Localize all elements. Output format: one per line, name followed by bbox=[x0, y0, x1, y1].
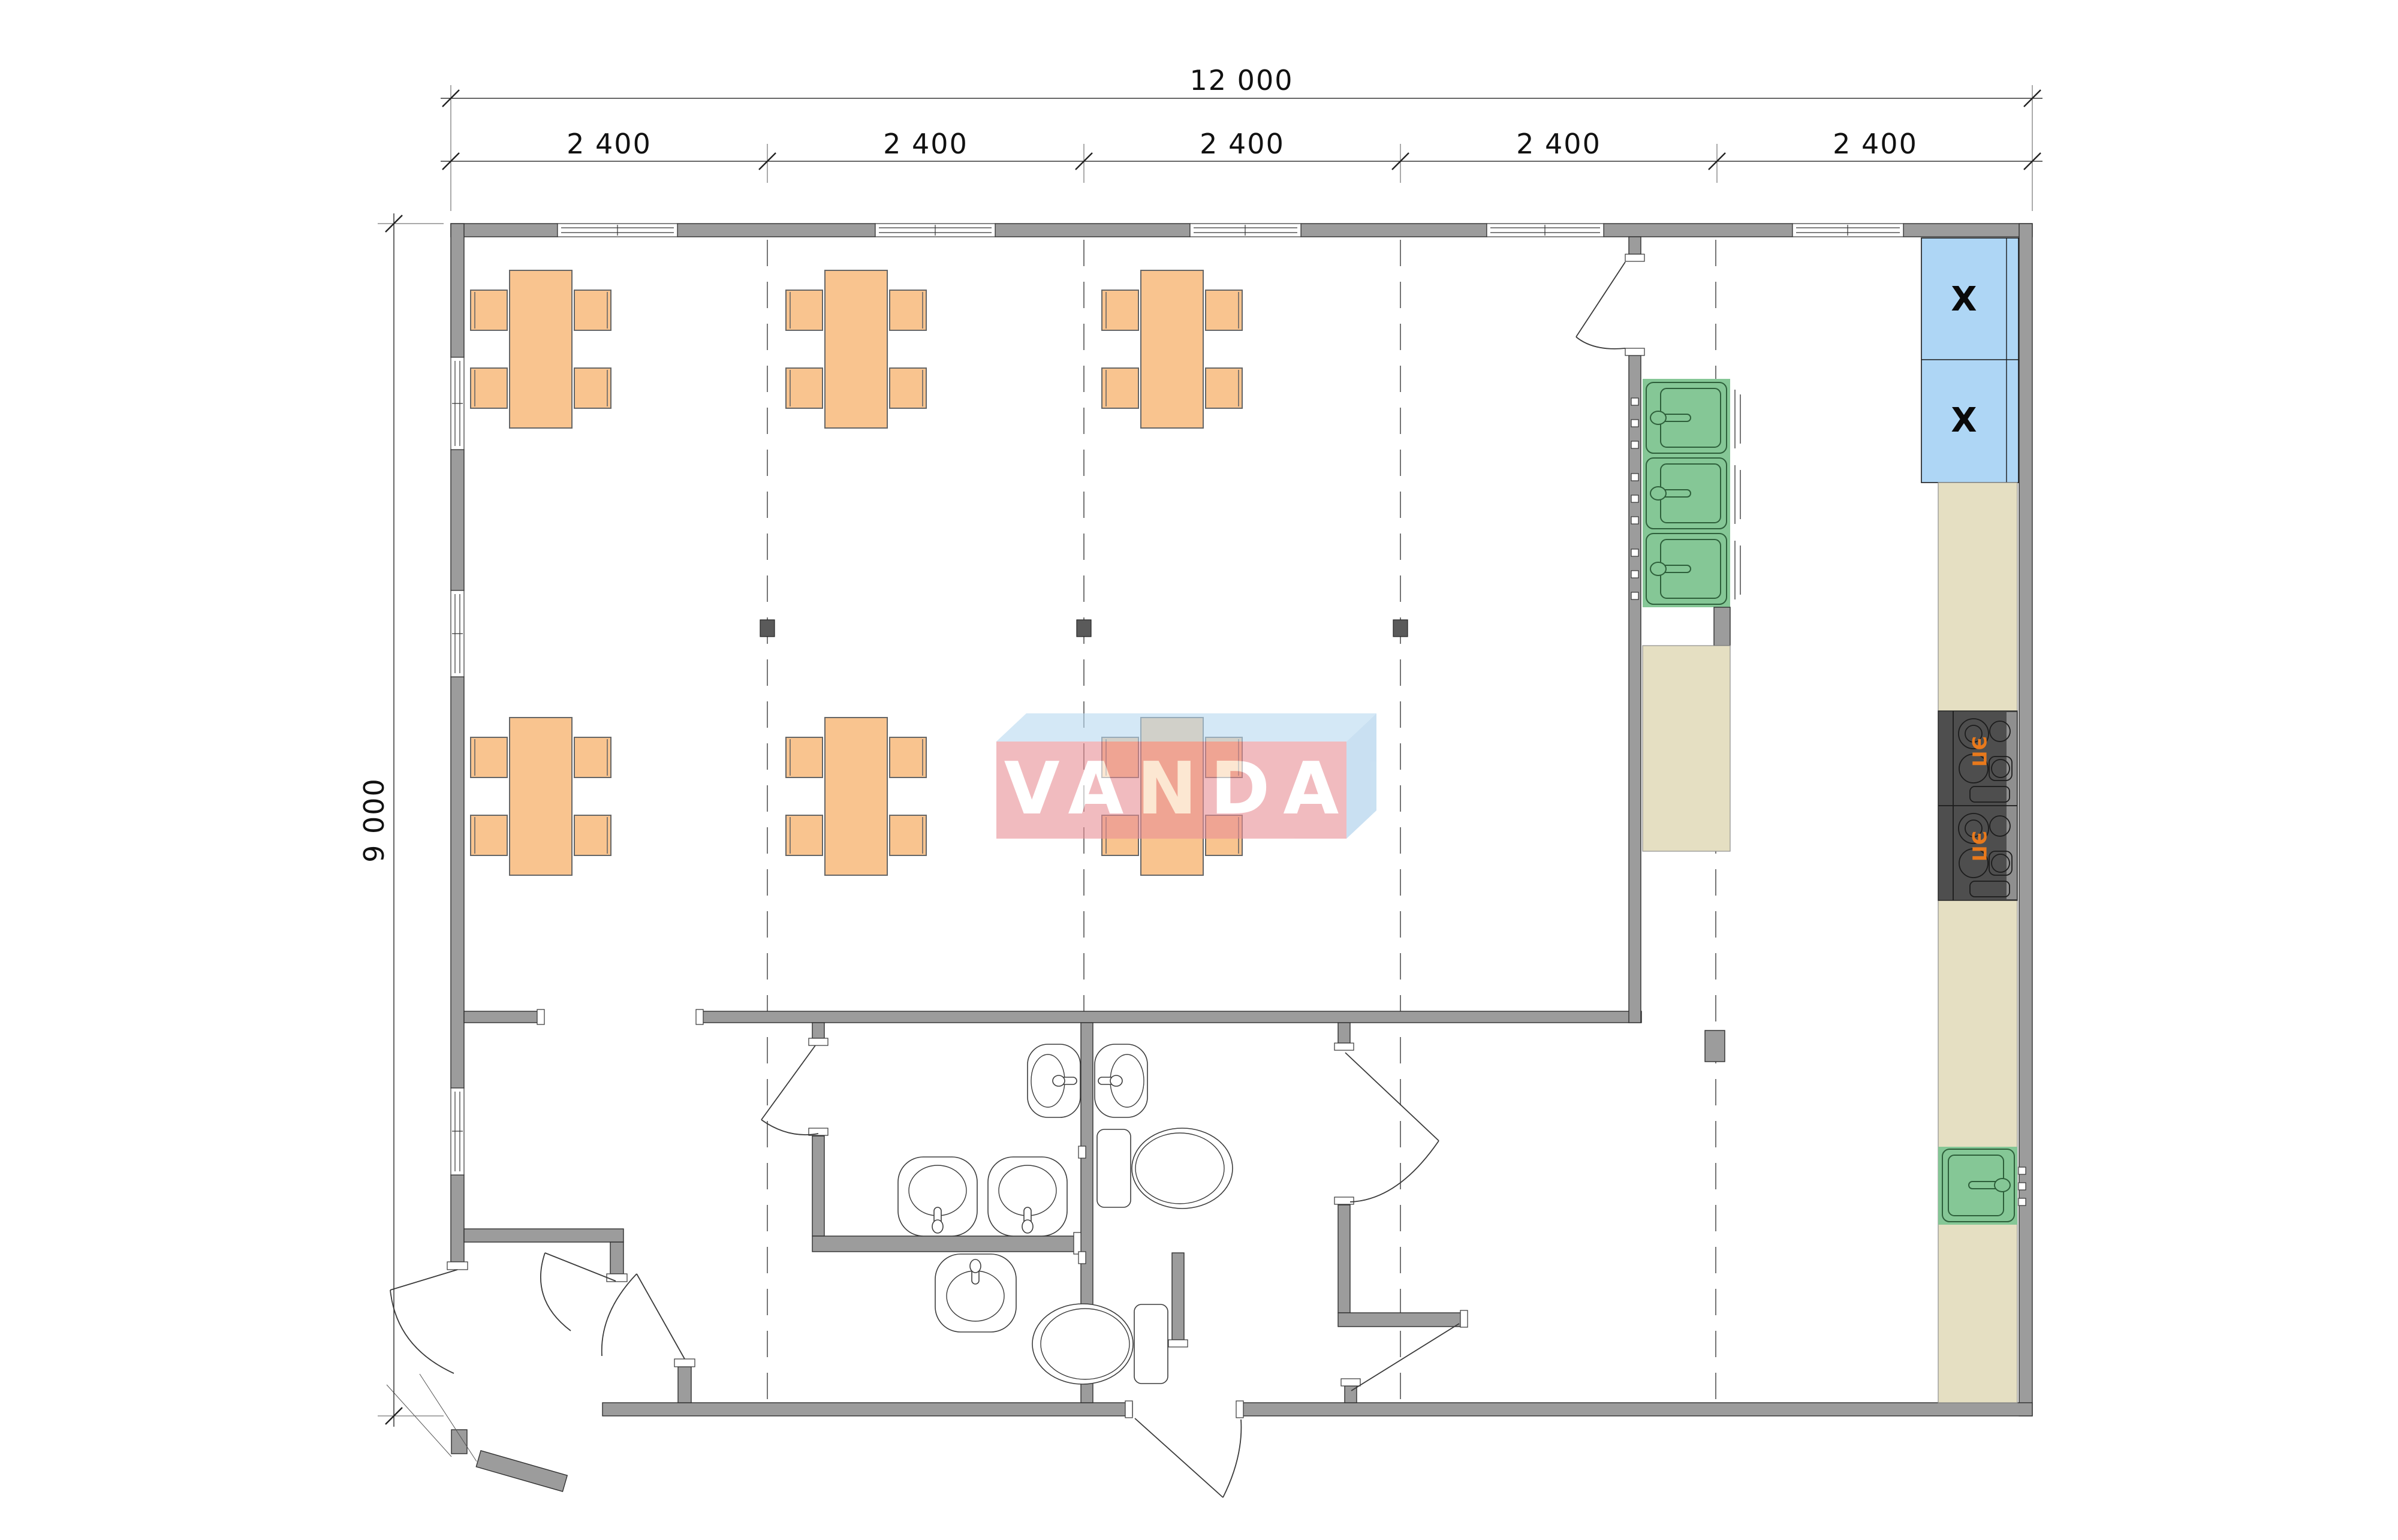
window-left-1 bbox=[451, 357, 464, 450]
watermark-text: VANDA bbox=[1004, 748, 1352, 831]
kitchen-area: X X ЭП ЭП bbox=[1631, 238, 2026, 1403]
pipe-connection bbox=[1079, 1252, 1086, 1264]
kitchen-counter-island bbox=[1643, 646, 1730, 851]
wash-basin-1 bbox=[898, 1157, 977, 1236]
dimension-module-3: 2 400 bbox=[1200, 128, 1285, 160]
window-top-1 bbox=[558, 224, 677, 237]
washroom-wall bbox=[812, 1236, 1076, 1252]
column bbox=[1393, 620, 1408, 637]
kitchen-sink-4 bbox=[1938, 1147, 2026, 1225]
column bbox=[1077, 620, 1091, 637]
dimension-module-4: 2 400 bbox=[1516, 128, 1601, 160]
wash-basin-3 bbox=[935, 1254, 1016, 1332]
column bbox=[760, 620, 775, 637]
dimension-module-1: 2 400 bbox=[567, 128, 652, 160]
dimension-overall-width: 12 000 bbox=[1190, 64, 1294, 97]
dimension-module-5: 2 400 bbox=[1833, 128, 1918, 160]
walls bbox=[387, 224, 2032, 1491]
kitchen-partition-wall bbox=[1629, 355, 1641, 1023]
column bbox=[1705, 1030, 1725, 1062]
kitchen-counter-upper bbox=[1938, 483, 2017, 711]
wall-stub bbox=[1714, 607, 1730, 646]
window-top-3 bbox=[1190, 224, 1301, 237]
floor-plan-drawing: X X ЭП ЭП bbox=[0, 0, 2398, 1540]
window-top-4 bbox=[1487, 224, 1604, 237]
dining-table-4 bbox=[471, 718, 611, 875]
window-top-2 bbox=[875, 224, 995, 237]
window-left-3 bbox=[451, 1088, 464, 1175]
wash-basin-pair-left bbox=[1028, 1044, 1080, 1117]
door-wc-right bbox=[1334, 1043, 1439, 1204]
fridge-block: X X bbox=[1921, 238, 2019, 483]
interior-wall-left bbox=[464, 1011, 540, 1023]
door-room-bottom-left bbox=[602, 1274, 695, 1367]
dining-table-3 bbox=[1102, 270, 1242, 428]
window-left-2 bbox=[451, 590, 464, 677]
wall-end-cap bbox=[1074, 1232, 1081, 1254]
porch-step bbox=[451, 1430, 467, 1454]
opening-jamb bbox=[537, 1009, 544, 1024]
stove-label: ЭП bbox=[1968, 736, 1990, 767]
dining-table-5 bbox=[786, 718, 926, 875]
interior-wall-main bbox=[701, 1011, 1641, 1023]
kitchen-sink-block bbox=[1631, 379, 1740, 607]
porch-step bbox=[476, 1451, 567, 1491]
pipe-connection bbox=[1079, 1146, 1086, 1158]
fridge-x-icon: X bbox=[1951, 401, 1977, 440]
doors bbox=[390, 254, 1644, 1497]
door-washroom bbox=[761, 1038, 828, 1135]
stove-label: ЭП bbox=[1968, 831, 1990, 862]
wall-end-cap bbox=[1168, 1340, 1188, 1347]
toilet-1 bbox=[1097, 1128, 1233, 1209]
door-kitchen-top bbox=[1576, 254, 1644, 355]
dining-table-1 bbox=[471, 270, 611, 428]
door-main-entrance bbox=[1125, 1401, 1243, 1497]
floor-plan-page: X X ЭП ЭП bbox=[0, 0, 2398, 1540]
dimension-module-2: 2 400 bbox=[883, 128, 968, 160]
stove-block: ЭП ЭП bbox=[1938, 711, 2017, 900]
wash-basin-pair-right bbox=[1095, 1044, 1147, 1117]
window-top-5 bbox=[1793, 224, 1903, 237]
dimension-overall-height: 9 000 bbox=[358, 777, 390, 863]
vanda-watermark: VANDA bbox=[996, 713, 1376, 839]
fridge-x-icon: X bbox=[1951, 280, 1977, 319]
dining-table-2 bbox=[786, 270, 926, 428]
watermark-top-face bbox=[996, 713, 1376, 742]
door-porch-left bbox=[390, 1262, 468, 1373]
wash-basin-2 bbox=[988, 1157, 1067, 1236]
toilet-2 bbox=[1032, 1304, 1168, 1384]
opening-jamb bbox=[696, 1009, 703, 1024]
